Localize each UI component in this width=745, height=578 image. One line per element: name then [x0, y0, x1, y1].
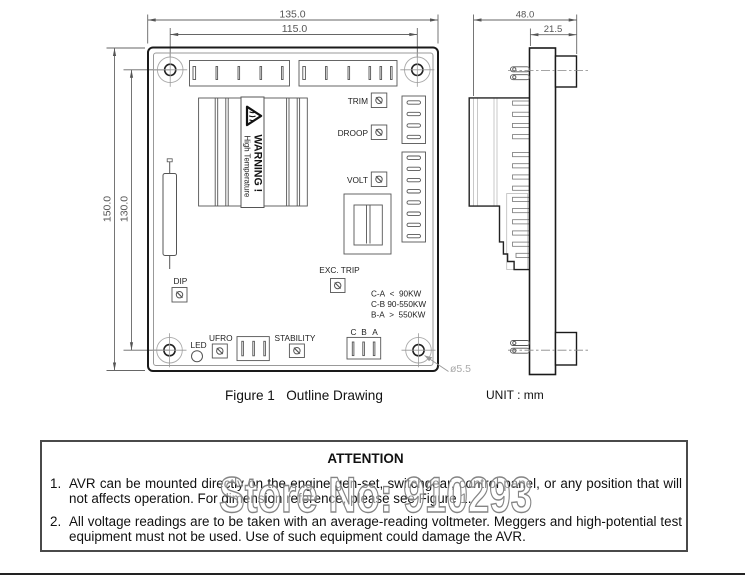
svg-text:DROOP: DROOP — [338, 128, 369, 138]
svg-text:STABILITY: STABILITY — [275, 333, 316, 343]
svg-text:21.5: 21.5 — [544, 24, 563, 35]
svg-text:ø5.5: ø5.5 — [450, 363, 471, 375]
svg-text:115.0: 115.0 — [282, 23, 308, 35]
svg-text:TRIM: TRIM — [348, 96, 368, 106]
svg-text:DIP: DIP — [174, 276, 188, 286]
svg-text:150.0: 150.0 — [102, 196, 114, 222]
svg-text:A: A — [372, 327, 378, 337]
svg-text:B-A > 550KW: B-A > 550KW — [371, 311, 426, 320]
svg-text:B: B — [361, 327, 367, 337]
svg-text:135.0: 135.0 — [279, 9, 305, 21]
svg-text:C-A < 90KW: C-A < 90KW — [371, 290, 422, 299]
svg-text:Figure 1 Outline Drawing: Figure 1 Outline Drawing — [225, 388, 383, 403]
svg-text:130.0: 130.0 — [119, 196, 131, 222]
svg-text:High Temperature: High Temperature — [243, 136, 252, 198]
svg-text:UNIT : mm: UNIT : mm — [486, 388, 544, 402]
svg-text:LED: LED — [191, 340, 207, 350]
svg-text:UFRO: UFRO — [209, 333, 233, 343]
svg-text:VOLT: VOLT — [347, 175, 368, 185]
svg-text:C: C — [351, 327, 357, 337]
svg-text:WARNING !: WARNING ! — [252, 135, 264, 193]
svg-text:EXC. TRIP: EXC. TRIP — [319, 265, 360, 275]
svg-text:C-B 90-550KW: C-B 90-550KW — [371, 300, 426, 309]
svg-text:48.0: 48.0 — [516, 10, 535, 21]
